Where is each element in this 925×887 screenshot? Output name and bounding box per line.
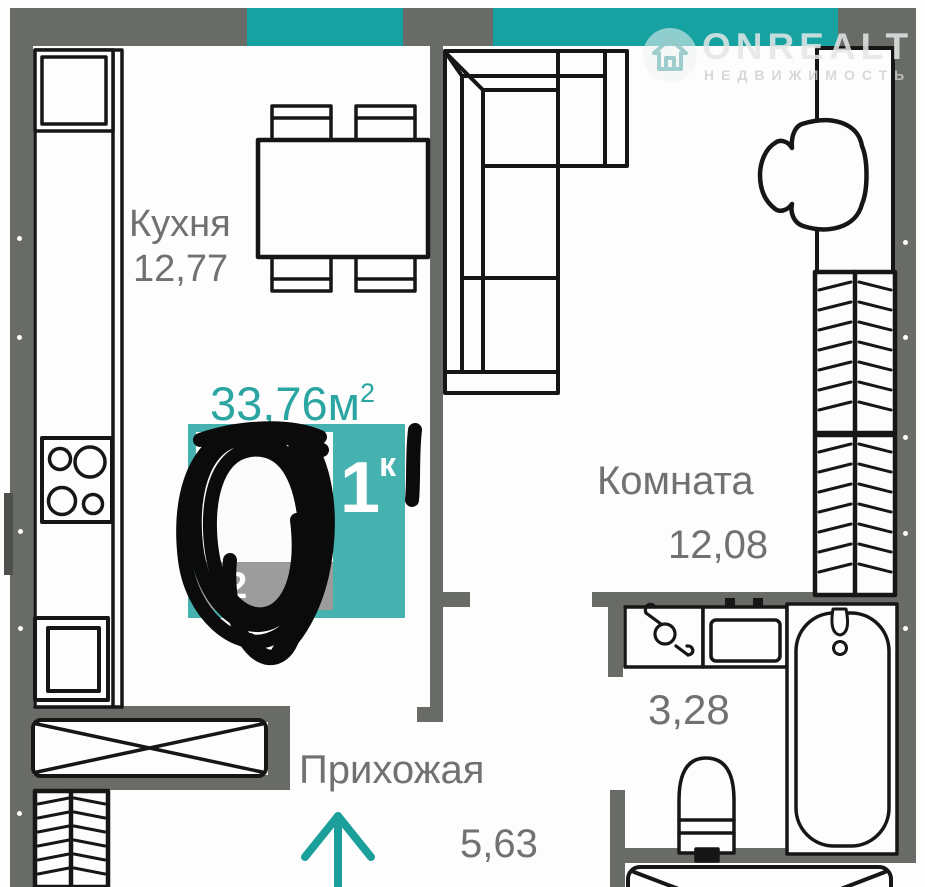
watermark: ONREALT НЕДВИЖИМОСТЬ	[632, 22, 922, 88]
floor-plan: Кухня 12,77 Комната 12,08 3,28 Прихожая …	[0, 0, 925, 887]
scribble-annotation	[0, 0, 925, 887]
watermark-house-icon	[640, 25, 700, 85]
watermark-subtitle: НЕДВИЖИМОСТЬ	[704, 67, 911, 83]
watermark-brand: ONREALT	[702, 26, 913, 68]
